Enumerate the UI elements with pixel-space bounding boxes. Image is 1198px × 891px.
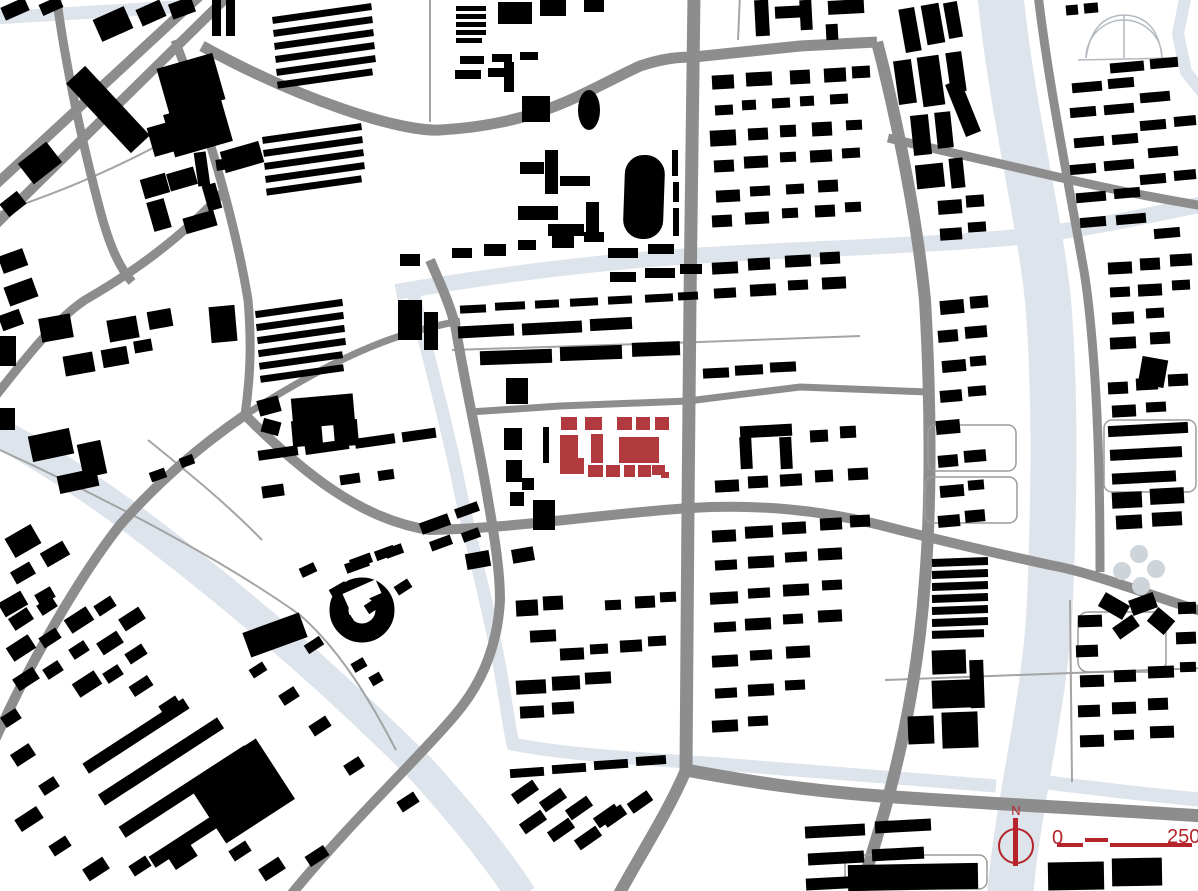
building xyxy=(1070,163,1097,175)
building xyxy=(1148,146,1179,159)
building xyxy=(1112,491,1143,509)
building xyxy=(516,679,547,695)
building xyxy=(249,661,268,678)
building xyxy=(785,254,812,267)
building xyxy=(1104,159,1135,172)
building xyxy=(915,163,945,190)
north-arrow-needle xyxy=(1013,818,1018,866)
main-road-vertical-south xyxy=(618,770,686,891)
building xyxy=(0,309,24,332)
building xyxy=(545,150,558,194)
building xyxy=(522,478,534,490)
building xyxy=(128,856,151,877)
building xyxy=(1180,662,1196,673)
building xyxy=(354,433,395,448)
building xyxy=(18,142,62,185)
building xyxy=(840,426,857,439)
building xyxy=(522,320,583,335)
building xyxy=(343,756,365,776)
building xyxy=(850,514,871,527)
building xyxy=(785,679,805,690)
building xyxy=(921,3,946,46)
building xyxy=(1112,311,1135,324)
building xyxy=(965,509,986,523)
building xyxy=(938,514,961,528)
building xyxy=(3,277,38,306)
highlighted-site-building xyxy=(619,437,659,463)
building xyxy=(339,473,360,486)
highlighted-site-building xyxy=(591,434,603,463)
building xyxy=(815,204,836,217)
building xyxy=(783,613,803,624)
building xyxy=(1172,280,1190,291)
building xyxy=(965,325,988,339)
building xyxy=(898,7,921,53)
building xyxy=(742,100,757,111)
building xyxy=(780,152,797,163)
building xyxy=(460,56,484,64)
building xyxy=(917,55,946,108)
building xyxy=(715,105,733,116)
building xyxy=(1108,422,1188,437)
building xyxy=(1112,858,1162,887)
building xyxy=(673,208,679,236)
building xyxy=(748,555,775,568)
building xyxy=(740,424,793,439)
building xyxy=(748,127,769,140)
building xyxy=(498,2,532,24)
building xyxy=(1112,702,1136,715)
building xyxy=(748,683,775,696)
channel-southeast xyxy=(1028,780,1198,800)
building xyxy=(714,159,735,172)
building xyxy=(504,62,514,92)
building xyxy=(458,324,515,339)
building xyxy=(518,240,536,250)
building xyxy=(146,198,172,232)
building xyxy=(1178,602,1196,615)
building xyxy=(1170,253,1193,266)
park-pinwheel-center xyxy=(1135,565,1145,575)
building xyxy=(750,185,770,196)
building xyxy=(605,600,622,611)
building xyxy=(1168,373,1189,386)
building xyxy=(932,593,988,603)
building xyxy=(539,788,567,813)
building xyxy=(715,687,737,698)
building xyxy=(590,317,633,331)
building xyxy=(812,121,833,136)
building xyxy=(940,484,965,498)
building xyxy=(1136,377,1159,390)
building xyxy=(948,157,965,188)
highlighted-site-building xyxy=(655,417,669,430)
building xyxy=(810,149,833,162)
building xyxy=(745,525,774,538)
building xyxy=(1147,607,1175,635)
building xyxy=(565,796,593,821)
building xyxy=(516,599,539,616)
building xyxy=(518,206,558,220)
building xyxy=(228,841,251,862)
building xyxy=(932,569,988,579)
building xyxy=(748,587,770,598)
building xyxy=(147,308,174,330)
building xyxy=(129,675,154,697)
scale-bar-segment xyxy=(1085,838,1108,842)
building xyxy=(506,378,528,404)
building xyxy=(456,38,482,43)
main-road-vertical xyxy=(686,0,694,770)
north-arrow-label: N xyxy=(1011,803,1020,818)
building xyxy=(552,763,587,774)
building xyxy=(1148,666,1174,679)
building xyxy=(504,428,522,450)
building xyxy=(510,767,545,778)
building xyxy=(548,224,584,236)
building xyxy=(1076,645,1098,658)
building xyxy=(786,645,811,658)
building xyxy=(1110,286,1130,297)
building xyxy=(783,583,810,596)
scale-bar-segment xyxy=(1110,843,1192,847)
building xyxy=(535,299,559,308)
building xyxy=(1112,614,1140,639)
park-pinwheel-petal xyxy=(1130,545,1148,563)
building xyxy=(810,430,829,443)
building xyxy=(82,857,110,882)
building xyxy=(584,232,604,242)
building xyxy=(226,0,235,36)
building xyxy=(586,202,599,236)
building xyxy=(632,341,680,357)
building xyxy=(780,125,797,138)
building xyxy=(585,671,612,684)
building xyxy=(968,479,985,490)
building xyxy=(1080,675,1104,688)
highlighted-site-building xyxy=(624,465,635,477)
building xyxy=(673,182,679,202)
building xyxy=(805,823,866,838)
river-southwest xyxy=(0,430,522,891)
building xyxy=(780,473,803,486)
building xyxy=(533,500,555,530)
building xyxy=(852,66,871,79)
minor-road xyxy=(148,440,262,540)
building xyxy=(710,591,739,604)
building xyxy=(1140,119,1167,131)
building xyxy=(484,244,506,256)
building xyxy=(1084,2,1099,13)
building xyxy=(377,469,394,481)
building xyxy=(394,578,413,595)
building xyxy=(712,214,733,227)
building xyxy=(520,705,545,718)
building xyxy=(574,826,602,851)
building xyxy=(824,67,847,82)
building xyxy=(932,629,984,639)
building xyxy=(703,367,729,378)
building xyxy=(1080,735,1104,748)
building xyxy=(140,173,171,199)
building xyxy=(818,547,843,560)
park-pinwheel-petal xyxy=(1113,562,1131,580)
highlighted-site-building xyxy=(606,465,620,477)
building xyxy=(1150,487,1185,505)
building xyxy=(714,621,736,632)
road-site-north xyxy=(470,387,928,412)
building xyxy=(1112,133,1139,145)
scale-bar: 0 250 xyxy=(1052,826,1198,849)
building xyxy=(648,636,666,647)
building xyxy=(460,304,486,313)
building xyxy=(368,672,383,687)
building xyxy=(398,300,422,340)
highlighted-site-building xyxy=(588,465,603,477)
building xyxy=(1140,91,1171,104)
building xyxy=(716,189,741,202)
building xyxy=(522,96,550,122)
building xyxy=(830,94,848,105)
building xyxy=(1174,169,1197,181)
building xyxy=(790,69,811,84)
building xyxy=(1108,381,1129,394)
building xyxy=(1108,261,1133,274)
building xyxy=(1138,283,1163,296)
building xyxy=(452,248,472,258)
building xyxy=(1110,446,1182,461)
building xyxy=(822,276,847,289)
building xyxy=(1078,705,1100,718)
building xyxy=(552,675,581,690)
building xyxy=(511,780,539,805)
highlighted-site-building xyxy=(661,472,669,478)
building xyxy=(1076,191,1107,204)
building xyxy=(635,595,656,608)
building xyxy=(1110,61,1145,74)
building xyxy=(1146,401,1166,412)
building xyxy=(715,479,740,492)
building xyxy=(1150,331,1171,344)
building xyxy=(278,686,300,706)
building xyxy=(456,30,486,35)
building xyxy=(520,52,538,60)
building xyxy=(848,863,978,891)
building xyxy=(969,660,985,708)
minor-road xyxy=(738,0,740,40)
building xyxy=(480,349,552,366)
stadium xyxy=(623,154,666,239)
building xyxy=(511,546,535,564)
building xyxy=(1152,511,1183,527)
building xyxy=(714,287,736,298)
figure-ground-map: N 0 250 xyxy=(0,0,1198,891)
building xyxy=(48,836,71,857)
building xyxy=(1070,106,1097,118)
building xyxy=(530,629,557,642)
building xyxy=(1154,227,1181,239)
building xyxy=(648,244,674,254)
building xyxy=(680,264,702,274)
building xyxy=(552,236,574,248)
creek-top-right xyxy=(1178,0,1198,92)
building xyxy=(256,395,281,416)
building xyxy=(14,806,43,832)
building xyxy=(941,711,978,748)
building xyxy=(584,0,604,12)
building xyxy=(1098,592,1130,620)
building xyxy=(818,609,843,622)
building xyxy=(299,562,318,578)
building xyxy=(5,524,42,558)
building xyxy=(40,541,71,568)
building xyxy=(750,649,772,660)
building xyxy=(610,272,636,282)
building xyxy=(590,644,608,655)
building xyxy=(540,0,566,16)
building xyxy=(964,449,987,463)
building xyxy=(552,701,575,714)
building xyxy=(745,211,770,224)
building xyxy=(42,660,64,680)
building xyxy=(782,521,807,534)
building xyxy=(934,111,954,148)
building xyxy=(754,0,770,36)
building xyxy=(932,605,988,615)
building xyxy=(820,517,843,530)
building xyxy=(133,339,153,354)
building xyxy=(1114,670,1136,683)
building xyxy=(968,385,987,397)
building xyxy=(608,295,632,304)
building xyxy=(645,268,675,278)
building xyxy=(560,176,590,186)
building xyxy=(620,639,643,652)
building xyxy=(770,361,796,372)
building xyxy=(779,437,793,470)
building xyxy=(935,419,960,435)
park-pinwheel-petal xyxy=(1132,577,1150,595)
building xyxy=(645,293,673,302)
building xyxy=(384,543,404,559)
building xyxy=(735,364,763,375)
building xyxy=(401,428,436,443)
building xyxy=(932,649,967,674)
building xyxy=(1078,615,1102,628)
building xyxy=(678,291,698,300)
building xyxy=(396,792,419,813)
building xyxy=(38,776,60,796)
minor-road xyxy=(1070,600,1072,782)
building xyxy=(712,261,739,274)
building xyxy=(1176,632,1196,645)
building xyxy=(68,640,90,660)
building xyxy=(712,529,737,542)
building xyxy=(166,166,198,191)
building xyxy=(10,561,36,584)
building xyxy=(822,579,842,590)
building xyxy=(815,470,834,483)
building xyxy=(970,355,987,366)
building xyxy=(1112,470,1176,484)
building xyxy=(820,251,841,264)
building xyxy=(106,316,139,343)
building xyxy=(745,617,772,630)
building xyxy=(846,120,863,131)
building xyxy=(940,227,963,241)
building xyxy=(715,559,737,570)
building xyxy=(942,359,967,373)
building xyxy=(800,96,815,107)
building xyxy=(560,647,585,660)
building xyxy=(102,664,124,684)
building xyxy=(519,810,547,835)
building xyxy=(1104,103,1135,116)
building xyxy=(62,352,95,377)
building xyxy=(547,818,575,843)
building xyxy=(786,184,804,195)
building xyxy=(1072,81,1103,94)
building xyxy=(672,150,678,176)
building xyxy=(940,389,963,403)
building xyxy=(938,329,959,343)
building xyxy=(932,557,988,567)
building xyxy=(543,595,564,610)
gymnasium-oval xyxy=(578,90,600,130)
building xyxy=(38,313,74,342)
site-layer xyxy=(560,417,669,478)
building xyxy=(96,631,124,656)
building xyxy=(748,257,771,270)
building xyxy=(970,295,989,309)
building xyxy=(746,71,773,86)
highlighted-site-building xyxy=(617,417,632,430)
building xyxy=(291,419,323,448)
building xyxy=(782,208,799,219)
building xyxy=(739,437,753,470)
building xyxy=(0,248,28,274)
building xyxy=(456,22,486,27)
building xyxy=(799,0,813,30)
building xyxy=(627,790,654,814)
building xyxy=(943,1,963,39)
building xyxy=(350,657,367,673)
building xyxy=(608,248,638,258)
building xyxy=(1066,4,1079,15)
building xyxy=(848,467,869,480)
building xyxy=(1114,730,1134,741)
map-canvas: N 0 250 xyxy=(0,0,1198,891)
building xyxy=(1048,862,1104,891)
building xyxy=(258,857,286,882)
building xyxy=(1110,336,1137,349)
building xyxy=(938,199,963,215)
building xyxy=(308,716,331,737)
building xyxy=(400,254,420,266)
building xyxy=(818,179,839,192)
building xyxy=(712,74,735,89)
building xyxy=(968,221,987,232)
building xyxy=(424,312,438,350)
building xyxy=(966,194,985,207)
building xyxy=(710,129,737,146)
building xyxy=(842,148,860,159)
building xyxy=(261,484,284,499)
building xyxy=(712,654,739,667)
building xyxy=(1148,698,1168,711)
building xyxy=(0,408,15,430)
building xyxy=(772,98,790,109)
